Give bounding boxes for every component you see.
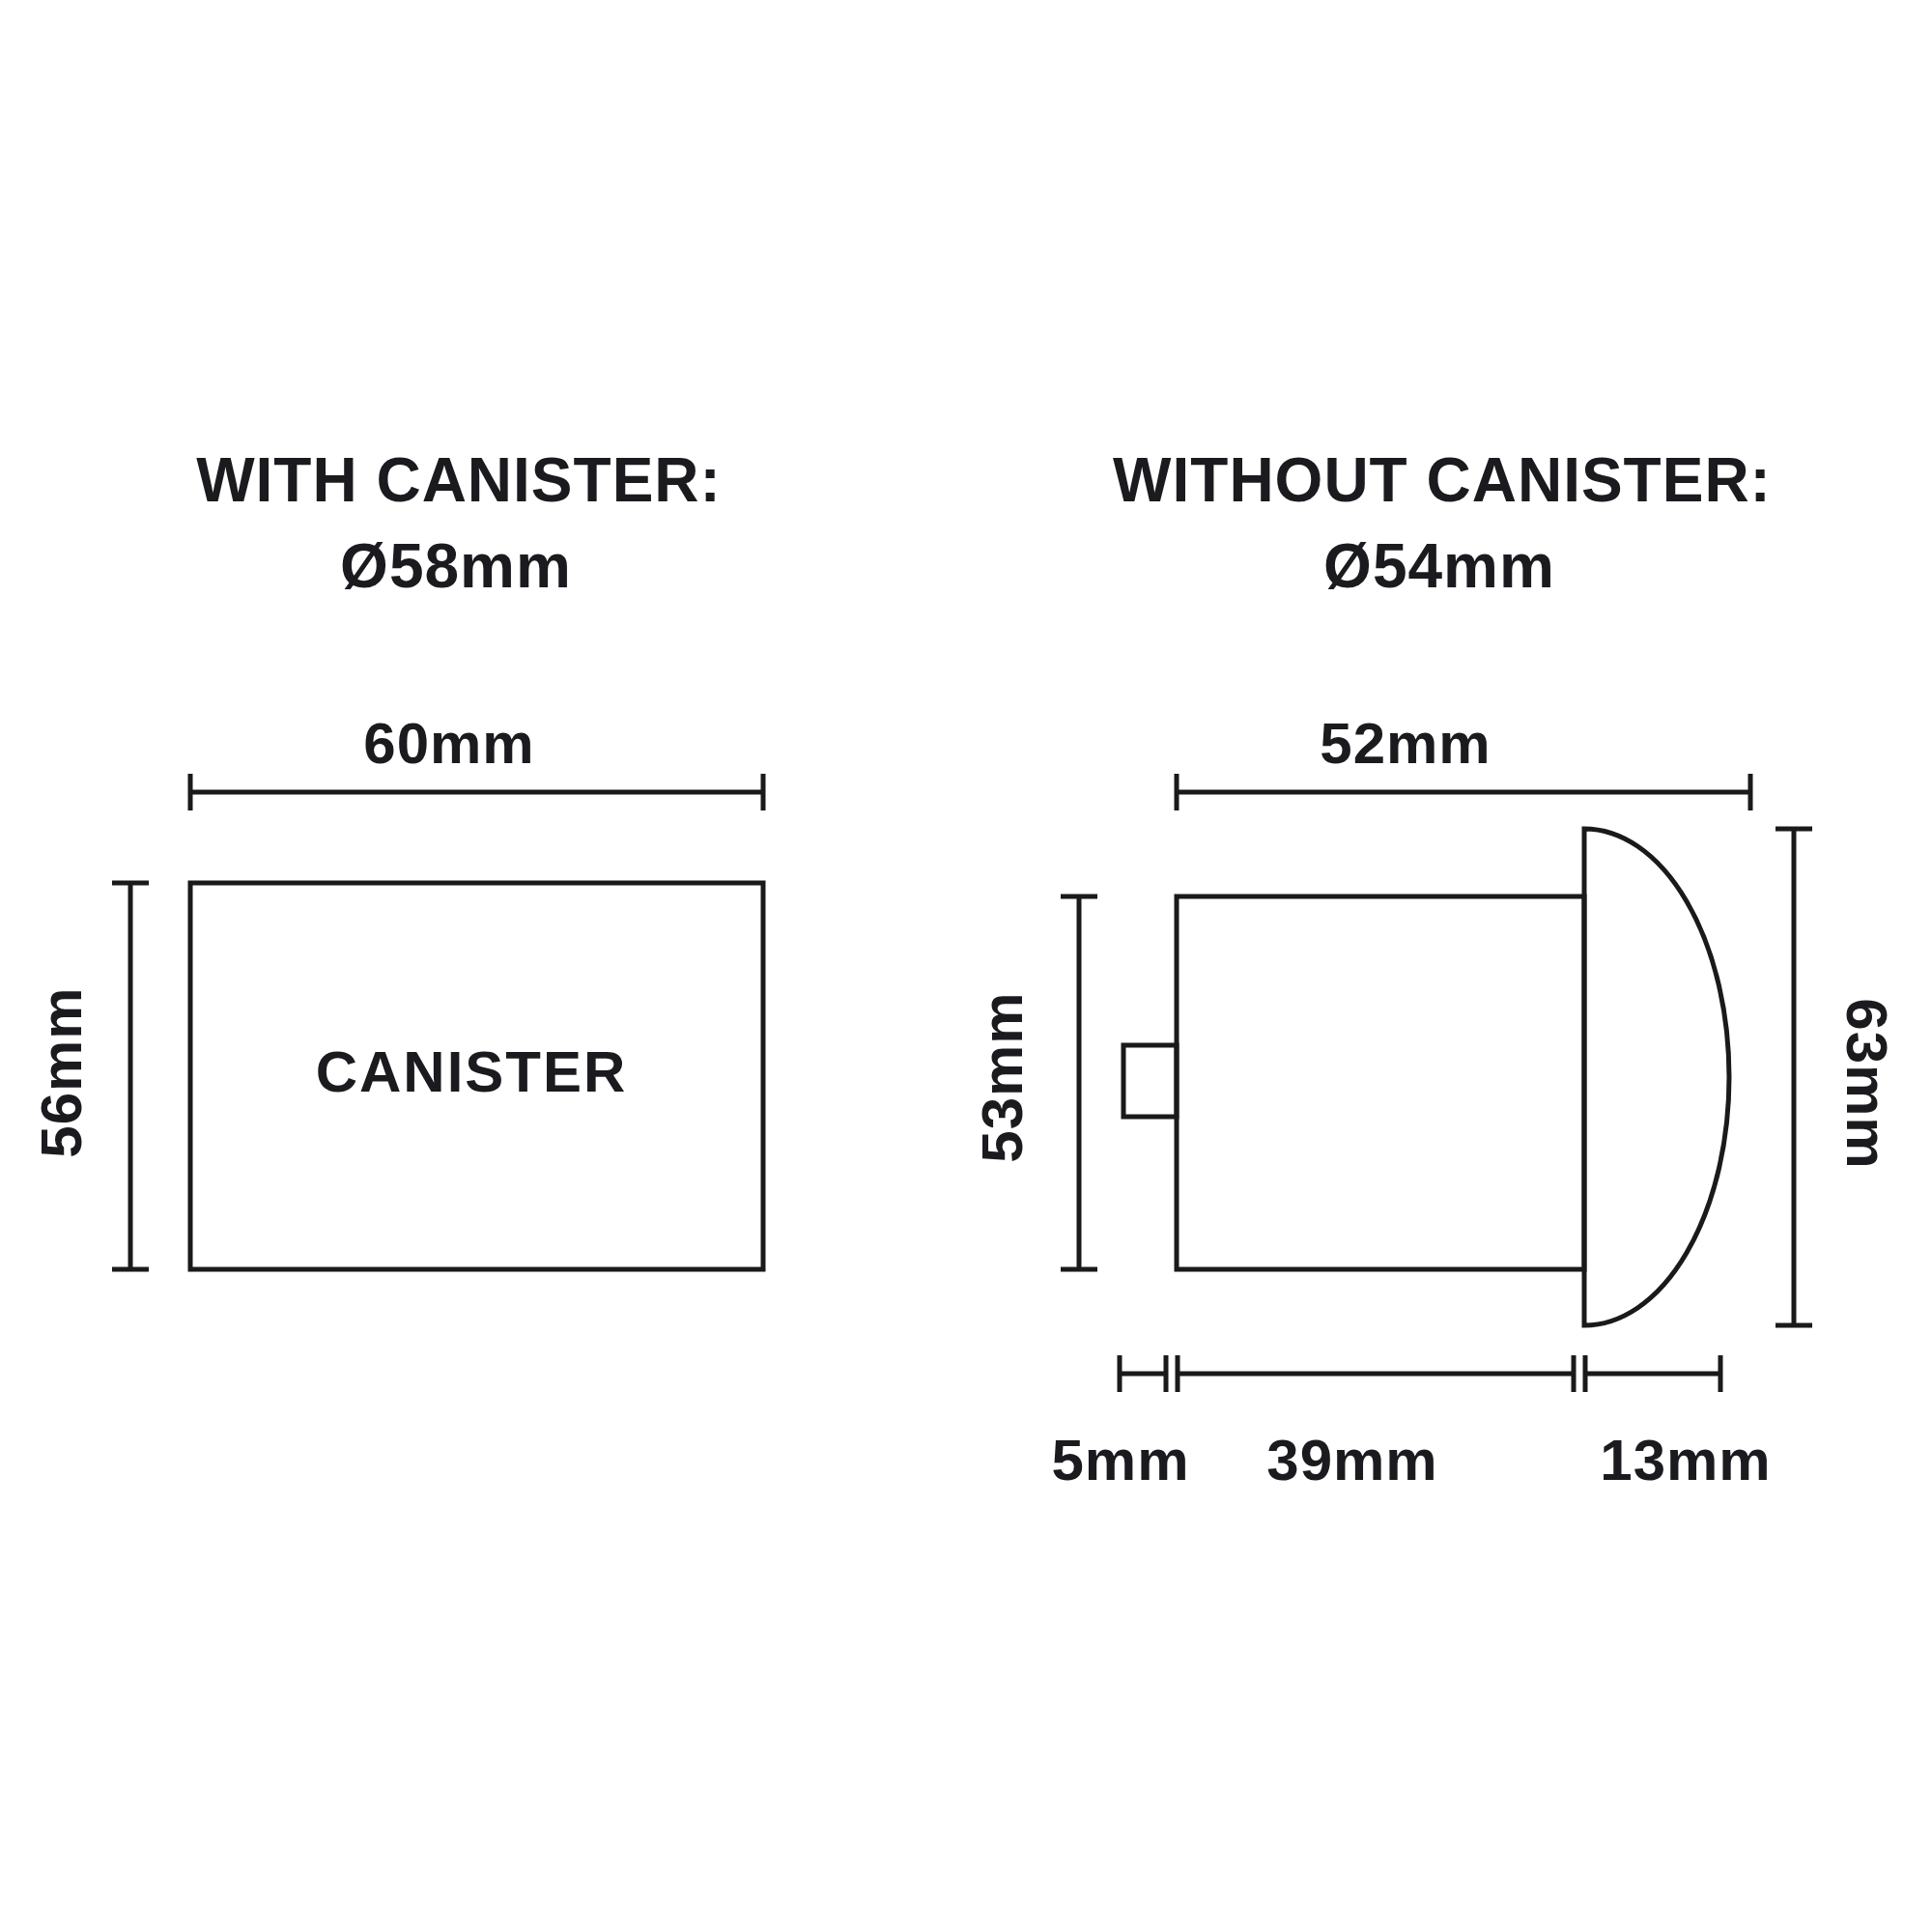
body-height-dim-line [1061,896,1097,1269]
left-width-dim-line [190,774,763,810]
dimension-diagram: WITH CANISTER: Ø58mm 60mm CANISTER 56mm … [0,0,1932,1932]
left-height-dim-line [112,883,149,1269]
overall-height-dim-label: 63mm [1834,998,1899,1169]
body-depth-dim-line [1178,1355,1574,1392]
body-height-dim-label: 53mm [970,991,1035,1162]
right-width-dim-line [1177,774,1750,810]
fixture-body-outline [1177,896,1584,1269]
left-view-with-canister: WITH CANISTER: Ø58mm 60mm CANISTER 56mm [29,445,763,1269]
nub-depth-dim-line [1120,1355,1166,1392]
technical-drawing-canvas: WITH CANISTER: Ø58mm 60mm CANISTER 56mm … [0,0,1932,1932]
fixture-rear-nub-outline [1123,1045,1177,1117]
right-view-diameter-label: Ø54mm [1323,531,1555,601]
right-view-without-canister: WITHOUT CANISTER: Ø54mm 52mm 53mm 63mm 5… [970,445,1899,1492]
nub-depth-dim-label: 5mm [1051,1428,1189,1492]
left-height-dim-label: 56mm [29,986,94,1157]
right-width-dim-label: 52mm [1320,711,1491,776]
left-view-title: WITH CANISTER: [196,445,722,515]
body-depth-dim-label: 39mm [1266,1428,1437,1492]
canister-label: CANISTER [316,1039,628,1104]
dome-depth-dim-line [1585,1355,1720,1392]
dome-depth-dim-label: 13mm [1600,1428,1771,1492]
left-view-diameter-label: Ø58mm [340,531,572,601]
fixture-dome-outline [1584,829,1729,1325]
right-view-title: WITHOUT CANISTER: [1113,445,1772,515]
overall-height-dim-line [1776,829,1812,1325]
left-width-dim-label: 60mm [363,711,534,776]
